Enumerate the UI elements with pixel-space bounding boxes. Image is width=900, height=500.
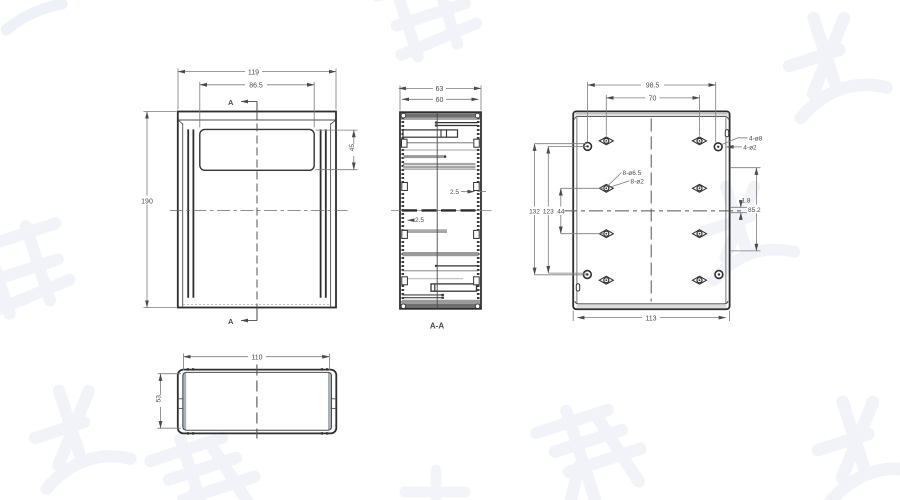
svg-text:132: 132 (529, 209, 540, 216)
svg-text:45: 45 (349, 144, 356, 152)
svg-text:2.5: 2.5 (450, 189, 459, 196)
svg-text:63: 63 (436, 86, 444, 93)
svg-text:53: 53 (156, 395, 163, 403)
svg-text:70: 70 (649, 96, 657, 103)
svg-text:85.2: 85.2 (748, 207, 761, 214)
svg-text:113: 113 (645, 315, 656, 322)
svg-text:98.5: 98.5 (646, 83, 660, 90)
svg-text:A-A: A-A (430, 322, 444, 331)
svg-text:2.5: 2.5 (415, 217, 424, 224)
svg-text:44: 44 (557, 209, 565, 216)
svg-text:119: 119 (248, 69, 259, 76)
svg-text:60: 60 (436, 97, 444, 104)
svg-text:190: 190 (141, 198, 153, 205)
svg-text:4-ø2: 4-ø2 (743, 145, 757, 152)
svg-text:1.8: 1.8 (742, 198, 751, 205)
svg-text:8-ø6.5: 8-ø6.5 (623, 170, 642, 177)
svg-text:123: 123 (543, 209, 554, 216)
svg-text:A: A (228, 98, 234, 107)
svg-text:4-ø8: 4-ø8 (749, 136, 763, 143)
svg-text:86.5: 86.5 (249, 83, 263, 90)
svg-text:A: A (228, 317, 234, 326)
svg-text:8-ø2: 8-ø2 (631, 178, 645, 185)
svg-text:110: 110 (251, 354, 262, 361)
